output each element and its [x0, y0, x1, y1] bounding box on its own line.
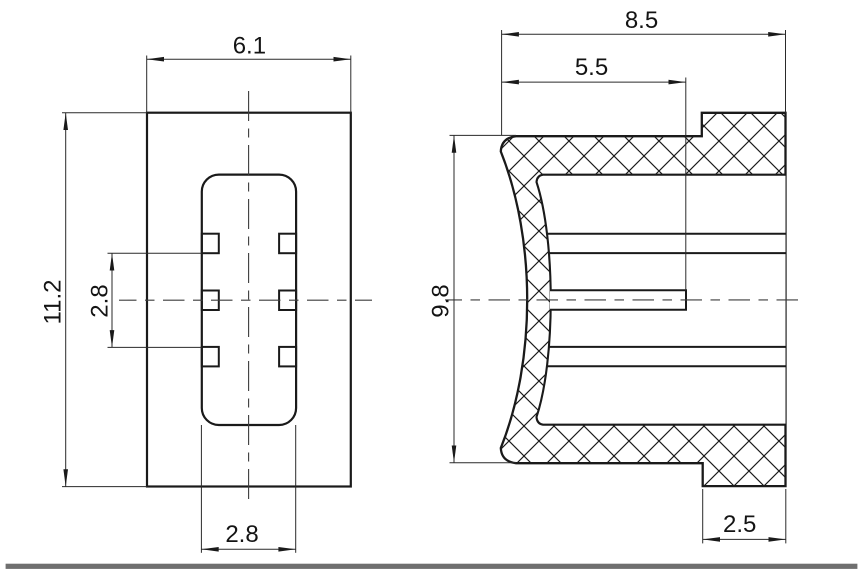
svg-text:2.8: 2.8 [225, 521, 258, 548]
svg-text:8.5: 8.5 [625, 7, 658, 34]
svg-text:9.8: 9.8 [427, 284, 454, 317]
svg-text:11.2: 11.2 [39, 280, 66, 325]
svg-text:2.8: 2.8 [87, 284, 114, 317]
svg-text:5.5: 5.5 [575, 54, 608, 81]
svg-text:6.1: 6.1 [233, 33, 266, 60]
svg-text:2.5: 2.5 [723, 511, 756, 538]
